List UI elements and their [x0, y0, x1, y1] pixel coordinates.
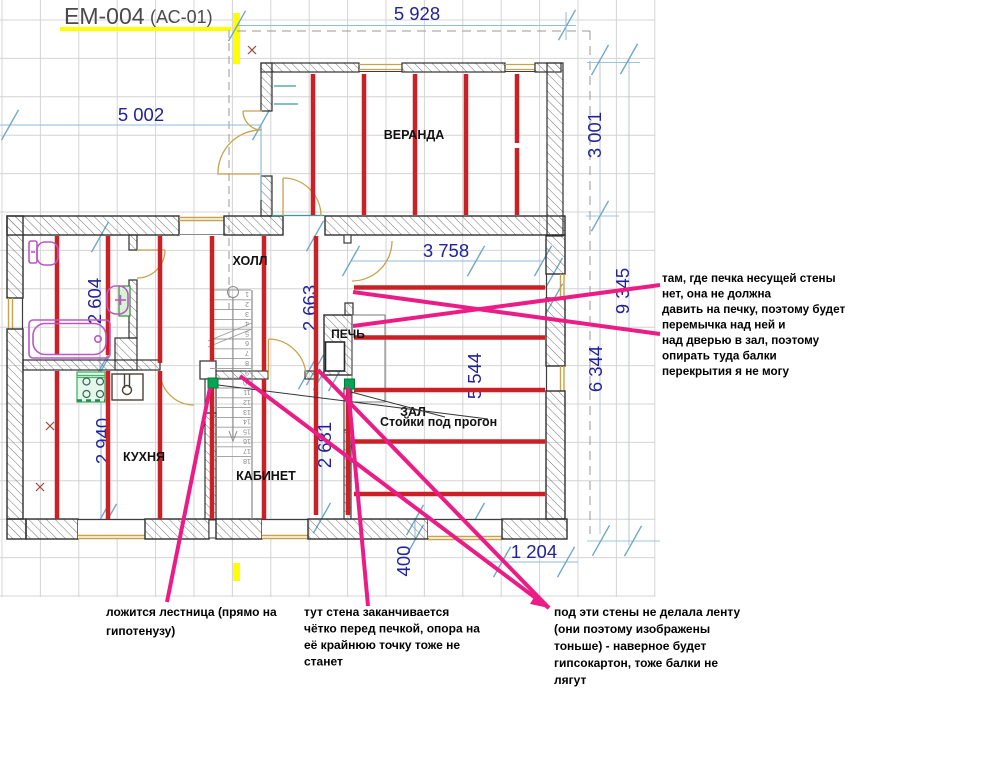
svg-text:17: 17	[243, 447, 251, 454]
svg-text:8: 8	[245, 359, 249, 366]
svg-text:9: 9	[245, 369, 249, 376]
svg-text:13: 13	[243, 408, 251, 415]
svg-text:2 604: 2 604	[84, 278, 105, 324]
svg-text:её крайнюю точку тоже не: её крайнюю точку тоже не	[304, 638, 460, 652]
svg-text:ПЕЧЬ: ПЕЧЬ	[331, 327, 365, 341]
svg-text:5 928: 5 928	[394, 3, 440, 24]
svg-text:над дверью в зал, поэтому: над дверью в зал, поэтому	[662, 334, 820, 347]
svg-text:гипотенузу): гипотенузу)	[106, 624, 175, 638]
svg-text:станет: станет	[304, 655, 343, 669]
svg-text:7: 7	[245, 349, 249, 356]
svg-text:нет, она не должна: нет, она не должна	[662, 288, 772, 301]
svg-text:16: 16	[243, 437, 251, 444]
svg-text:3 001: 3 001	[584, 112, 605, 158]
svg-text:14: 14	[243, 418, 251, 425]
svg-text:6 344: 6 344	[585, 346, 606, 392]
svg-text:давить на печку, поэтому будет: давить на печку, поэтому будет	[662, 303, 845, 316]
svg-text:12: 12	[243, 398, 251, 405]
svg-text:(они поэтому изображены: (они поэтому изображены	[554, 622, 710, 636]
svg-text:перемычка над ней и: перемычка над ней и	[662, 319, 785, 332]
svg-text:КАБИНЕТ: КАБИНЕТ	[236, 469, 296, 483]
svg-text:ВЕРАНДА: ВЕРАНДА	[384, 128, 445, 142]
svg-text:Стойки под прогон: Стойки под прогон	[380, 415, 497, 429]
svg-text:3: 3	[245, 310, 249, 317]
svg-text:6: 6	[245, 339, 249, 346]
svg-text:там, где печка несущей стены: там, где печка несущей стены	[662, 272, 836, 285]
svg-text:чётко перед печкой, опора на: чётко перед печкой, опора на	[304, 622, 480, 636]
svg-text:(АС-01): (АС-01)	[150, 7, 213, 27]
svg-text:гипсокартон, тоже балки не: гипсокартон, тоже балки не	[554, 656, 718, 670]
svg-text:3 758: 3 758	[423, 240, 469, 261]
svg-text:перекрытия я не могу: перекрытия я не могу	[662, 365, 790, 378]
svg-text:2: 2	[245, 300, 249, 307]
svg-text:ложится лестница (прямо на: ложится лестница (прямо на	[106, 605, 277, 619]
svg-text:ЕМ-004: ЕМ-004	[64, 3, 145, 29]
svg-text:тоньше) - наверное будет: тоньше) - наверное будет	[554, 639, 707, 653]
svg-text:18: 18	[243, 457, 251, 464]
svg-text:опирать туда балки: опирать туда балки	[662, 350, 777, 363]
svg-text:лягут: лягут	[554, 673, 586, 687]
svg-text:под эти стены не делала ленту: под эти стены не делала ленту	[554, 605, 741, 619]
svg-text:ХОЛЛ: ХОЛЛ	[233, 254, 268, 268]
svg-text:1: 1	[245, 290, 249, 297]
svg-text:400: 400	[393, 546, 414, 577]
svg-text:5 002: 5 002	[118, 104, 164, 125]
svg-text:тут стена заканчивается: тут стена заканчивается	[304, 605, 449, 619]
svg-text:1 204: 1 204	[511, 541, 557, 562]
svg-text:КУХНЯ: КУХНЯ	[123, 450, 165, 464]
svg-text:15: 15	[243, 427, 251, 434]
